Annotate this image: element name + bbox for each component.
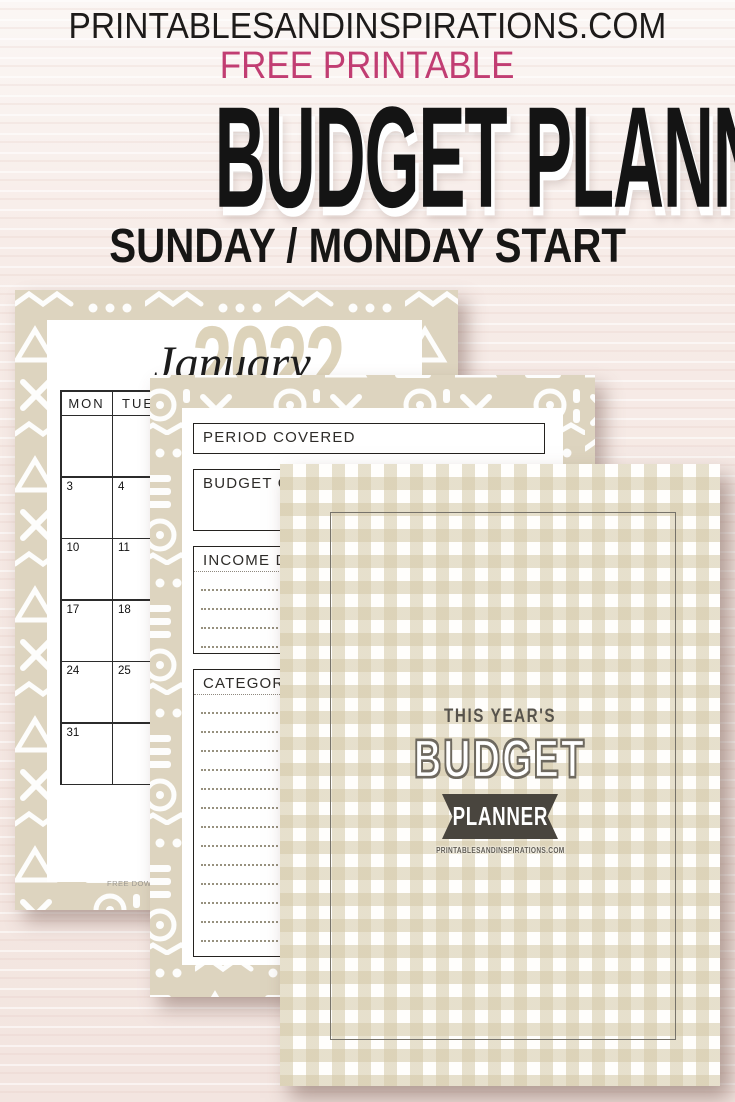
cover-page: THIS YEAR'S BUDGET PLANNER PRINTABLESAND… [280, 464, 720, 1086]
cover-banner-text: PLANNER [452, 801, 548, 832]
field-period-covered: PERIOD COVERED [193, 423, 545, 454]
budget-planner-pin-graphic: PRINTABLESANDINSPIRATIONS.COM FREE PRINT… [0, 0, 735, 1102]
subtitle-week-start: SUNDAY / MONDAY START [0, 219, 735, 274]
cover-eyebrow: THIS YEAR'S [280, 706, 720, 728]
calendar-day-header: MON [62, 392, 112, 415]
site-url-heading: PRINTABLESANDINSPIRATIONS.COM [0, 5, 735, 47]
calendar-day-cell [62, 416, 112, 476]
calendar-day-cell: 24 [62, 662, 112, 722]
cover-site-url: PRINTABLESANDINSPIRATIONS.COM [280, 846, 720, 855]
calendar-grid: MONTUE3410111718242531 [60, 390, 165, 785]
calendar-day-cell: 10 [62, 539, 112, 599]
calendar-day-cell: 17 [62, 601, 112, 661]
cover-title: BUDGET [280, 732, 720, 786]
cover-site-url-text: PRINTABLESANDINSPIRATIONS.COM [436, 846, 564, 855]
calendar-day-cell: 31 [62, 724, 112, 784]
cover-banner-ribbon: PLANNER [442, 794, 558, 839]
site-url-text: PRINTABLESANDINSPIRATIONS.COM [69, 5, 667, 47]
calendar-day-cell: 3 [62, 478, 112, 538]
page-title-text: BUDGET PLANNER [215, 86, 735, 230]
subtitle-text: SUNDAY / MONDAY START [109, 219, 626, 274]
cover-eyebrow-text: THIS YEAR'S [444, 706, 556, 728]
cover-title-text: BUDGET [414, 732, 586, 786]
page-title: BUDGET PLANNER [0, 86, 735, 204]
field-label: PERIOD COVERED [194, 424, 544, 446]
